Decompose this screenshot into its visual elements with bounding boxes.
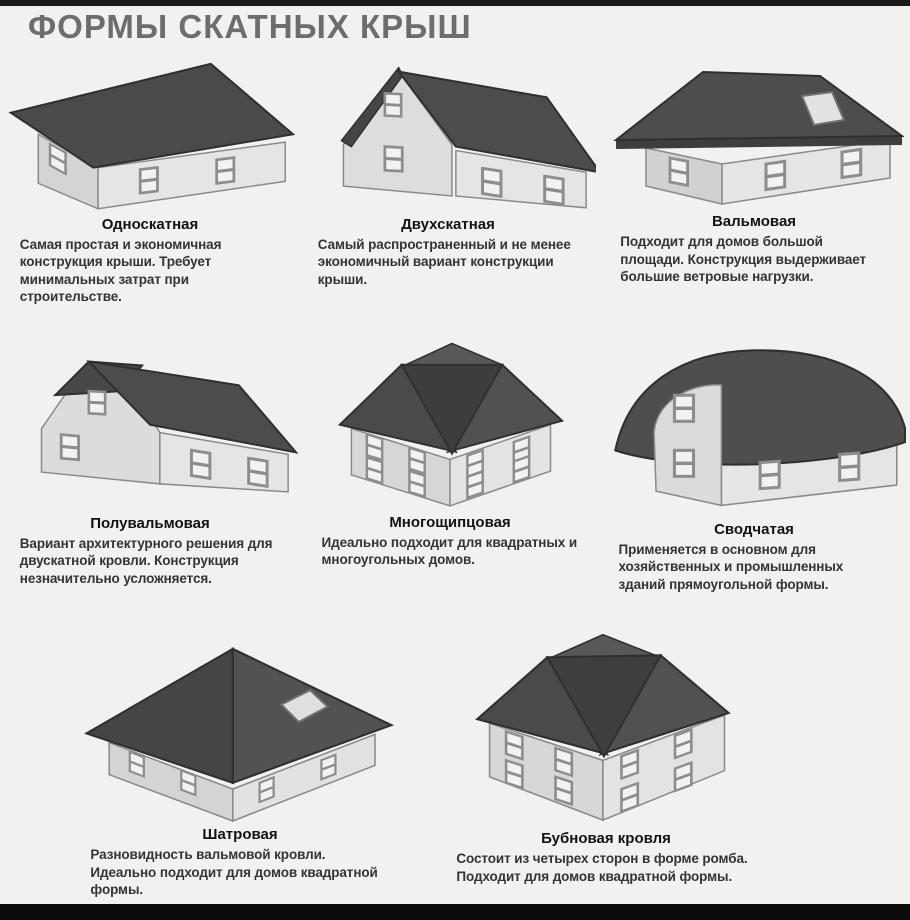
- roof-type-description: Подходит для домов большой площади. Конс…: [620, 233, 888, 286]
- roof-type-card-mnogoshchiptsovaya: Многощипцовая Идеально подходит для квад…: [304, 328, 596, 569]
- roof-type-description: Состоит из четырех сторон в форме ромба.…: [456, 850, 755, 885]
- bottom-letterbox-bar: [0, 904, 910, 920]
- house-hip-roof-illustration: [604, 36, 904, 211]
- roof-type-name: Полувальмовая: [90, 515, 210, 532]
- page-title: ФОРМЫ СКАТНЫХ КРЫШ: [28, 8, 472, 46]
- roof-type-card-dvuhskatnaya: Двухскатная Самый распространенный и не …: [300, 46, 596, 288]
- house-gable-roof-illustration: [300, 46, 596, 214]
- roof-type-name: Шатровая: [202, 826, 277, 843]
- roof-type-card-bubnovaya: Бубновая кровля Состоит из четырех сторо…: [436, 612, 776, 885]
- roof-type-description: Самая простая и экономичная конструкция …: [20, 236, 280, 306]
- roof-type-description: Идеально подходит для квадратных и много…: [322, 534, 579, 569]
- roof-type-card-shatrovaya: Шатровая Разновидность вальмовой кровли.…: [70, 618, 410, 899]
- roof-type-description: Самый распространенный и не менее эконом…: [318, 236, 578, 289]
- roof-type-card-valmovaya: Вальмовая Подходит для домов большой пло…: [602, 36, 906, 286]
- house-diamond-roof-illustration: [436, 612, 776, 828]
- roof-type-name: Бубновая кровля: [541, 830, 671, 847]
- house-multi-gable-roof-illustration: [305, 328, 595, 512]
- roof-type-name: Двухскатная: [401, 216, 495, 233]
- top-letterbox-bar: [0, 0, 910, 6]
- roof-type-card-poluvalmovaya: Полувальмовая Вариант архитектурного реш…: [2, 330, 298, 587]
- roof-type-description: Применяется в основном для хозяйственных…: [618, 541, 889, 594]
- roof-type-description: Разновидность вальмовой кровли. Идеально…: [90, 846, 389, 899]
- house-tent-roof-illustration: [70, 618, 410, 824]
- house-vaulted-roof-illustration: [601, 330, 907, 519]
- house-single-pitch-roof-illustration: [3, 52, 297, 214]
- roof-type-name: Многощипцовая: [389, 514, 510, 531]
- roof-type-card-svodchataya: Сводчатая Применяется в основном для хоз…: [600, 330, 908, 593]
- roof-type-name: Сводчатая: [714, 521, 794, 538]
- roof-type-name: Вальмовая: [712, 213, 796, 230]
- roof-type-name: Односкатная: [102, 216, 199, 233]
- house-half-hip-roof-illustration: [2, 330, 298, 513]
- roof-type-description: Вариант архитектурного решения для двуск…: [20, 535, 280, 588]
- roof-type-card-odnoskatnaya: Односкатная Самая простая и экономичная …: [2, 52, 298, 306]
